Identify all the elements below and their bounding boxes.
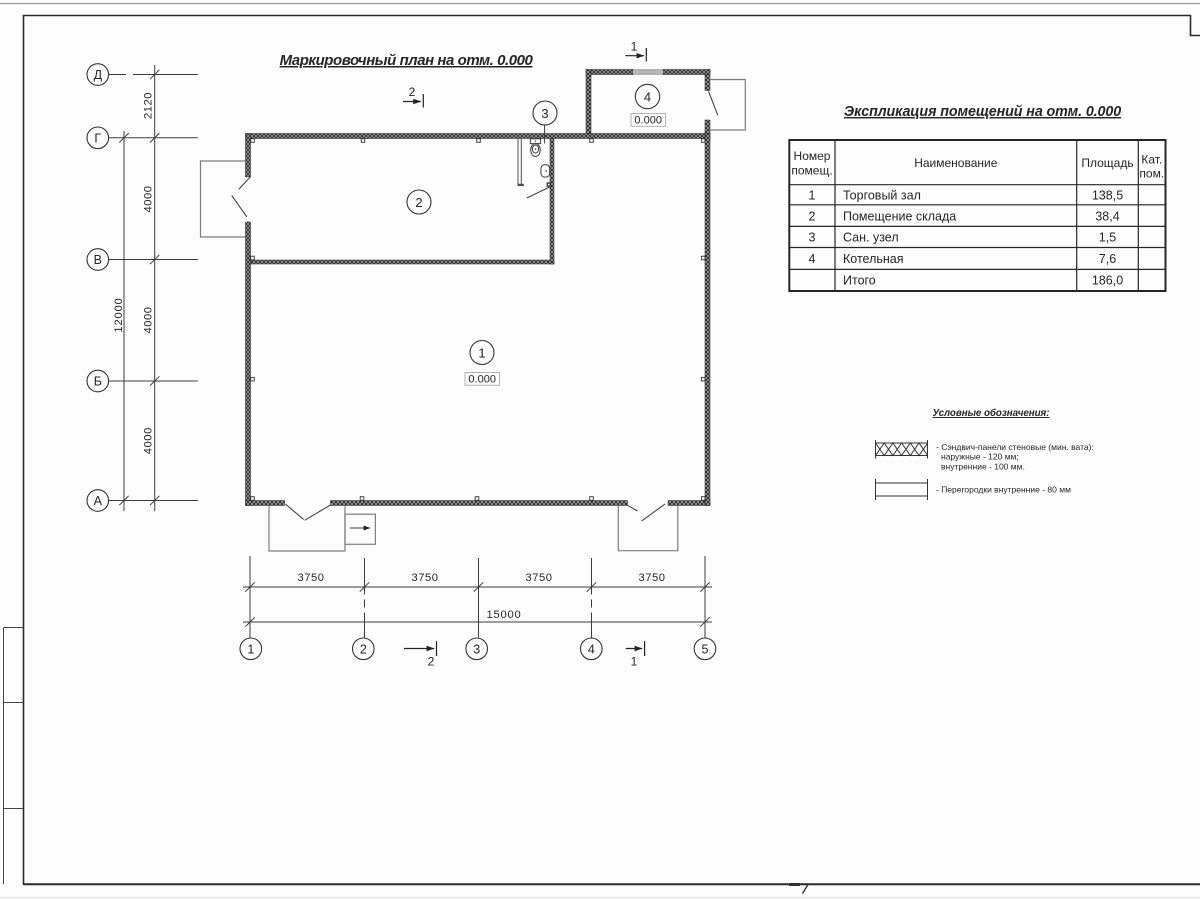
svg-text:3750: 3750: [525, 572, 552, 584]
svg-text:наружные - 120 мм;: наружные - 120 мм;: [941, 452, 1019, 462]
svg-text:внутренние - 100 мм.: внутренние - 100 мм.: [941, 461, 1025, 471]
svg-text:1: 1: [478, 345, 485, 360]
svg-text:Б: Б: [94, 375, 102, 389]
svg-text:2120: 2120: [143, 92, 155, 119]
svg-text:3: 3: [541, 106, 548, 121]
svg-text:- Сэндвич-панели стеновые (мин: - Сэндвич-панели стеновые (мин. вата):: [936, 442, 1094, 452]
svg-text:0.000: 0.000: [634, 115, 662, 127]
svg-text:15000: 15000: [486, 609, 521, 621]
svg-text:Номер: Номер: [794, 149, 831, 163]
svg-text:Итого: Итого: [843, 274, 876, 288]
svg-text:4: 4: [644, 89, 651, 104]
svg-text:Наименование: Наименование: [914, 156, 998, 170]
svg-text:186,0: 186,0: [1092, 274, 1123, 288]
svg-text:2: 2: [428, 655, 435, 669]
svg-text:12000: 12000: [113, 297, 125, 332]
svg-text:помещ.: помещ.: [791, 164, 832, 178]
svg-text:Д: Д: [94, 68, 103, 82]
svg-text:Торговый зал: Торговый зал: [843, 189, 921, 203]
svg-text:4: 4: [588, 642, 595, 656]
svg-text:4000: 4000: [143, 427, 155, 454]
svg-text:4: 4: [809, 252, 816, 266]
svg-text:3750: 3750: [411, 572, 438, 584]
svg-text:2: 2: [809, 210, 816, 224]
svg-text:3: 3: [809, 231, 816, 245]
svg-text:пом.: пом.: [1139, 167, 1164, 181]
svg-text:1: 1: [631, 40, 638, 54]
svg-text:Котельная: Котельная: [843, 252, 904, 266]
svg-text:5: 5: [702, 642, 709, 656]
svg-text:1,5: 1,5: [1099, 231, 1116, 245]
svg-text:3750: 3750: [638, 572, 665, 584]
svg-text:3750: 3750: [297, 572, 324, 584]
svg-text:2: 2: [409, 85, 416, 99]
svg-text:4000: 4000: [143, 185, 155, 212]
svg-text:А: А: [94, 494, 103, 508]
svg-text:1: 1: [809, 189, 816, 203]
svg-text:1: 1: [631, 655, 638, 669]
svg-text:38,4: 38,4: [1095, 210, 1119, 224]
svg-text:Сан. узел: Сан. узел: [843, 231, 899, 245]
svg-text:В: В: [94, 253, 102, 267]
svg-text:138,5: 138,5: [1092, 189, 1123, 203]
svg-text:Помещение склада: Помещение склада: [843, 210, 956, 224]
svg-text:7,6: 7,6: [1099, 252, 1116, 266]
svg-text:3: 3: [473, 642, 480, 656]
svg-text:Условные обозначения:: Условные обозначения:: [933, 408, 1050, 419]
svg-text:2: 2: [415, 195, 422, 210]
svg-text:4000: 4000: [143, 306, 155, 333]
svg-text:- Перегородки внутренние - 80: - Перегородки внутренние - 80 мм: [936, 485, 1071, 495]
svg-text:0.000: 0.000: [468, 374, 496, 386]
svg-text:2: 2: [360, 642, 367, 656]
svg-text:Маркировочный план на отм. 0.0: Маркировочный план на отм. 0.000: [280, 52, 534, 69]
svg-text:Площадь: Площадь: [1081, 156, 1133, 170]
svg-text:Г: Г: [94, 131, 101, 145]
svg-text:1: 1: [247, 642, 254, 656]
svg-text:Экспликация помещений на отм.: Экспликация помещений на отм. 0.000: [844, 104, 1121, 120]
svg-text:Кат.: Кат.: [1141, 153, 1162, 167]
